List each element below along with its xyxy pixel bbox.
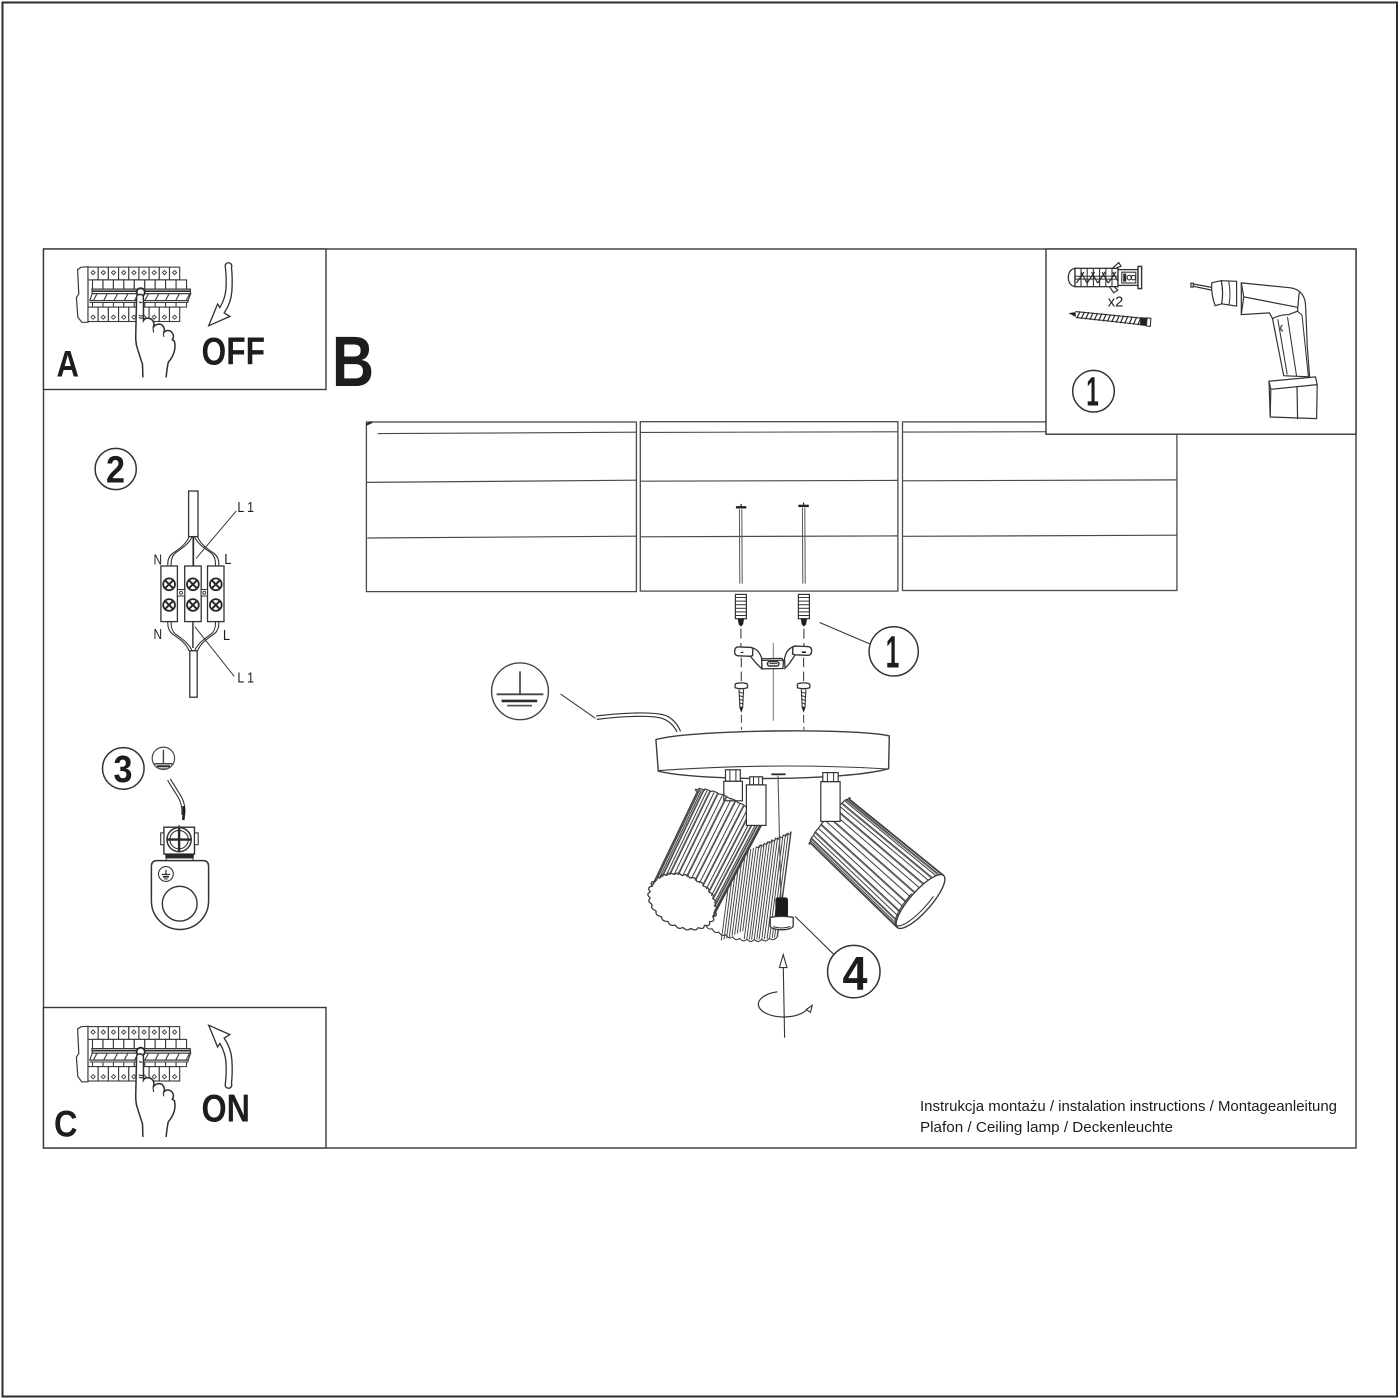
svg-text:ON: ON [202,1088,251,1131]
svg-text:1: 1 [886,627,900,678]
svg-text:3: 3 [114,749,133,791]
svg-text:B: B [332,323,374,402]
svg-text:L 1: L 1 [237,670,254,687]
svg-text:L: L [224,551,231,568]
svg-text:L: L [223,627,230,644]
svg-text:2: 2 [106,450,125,492]
svg-text:OFF: OFF [202,331,266,374]
svg-text:1: 1 [1086,368,1099,414]
svg-text:Instrukcja montażu / instalati: Instrukcja montażu / instalation instruc… [920,1098,1337,1115]
svg-text:4: 4 [843,946,868,999]
svg-text:A: A [57,343,80,384]
svg-text:N: N [154,626,163,643]
svg-text:Plafon / Ceiling lamp / Decken: Plafon / Ceiling lamp / Deckenleuchte [920,1119,1173,1136]
svg-text:x2: x2 [1108,295,1124,311]
svg-text:C: C [54,1103,78,1144]
svg-text:N: N [154,552,163,569]
svg-text:L 1: L 1 [237,499,254,516]
